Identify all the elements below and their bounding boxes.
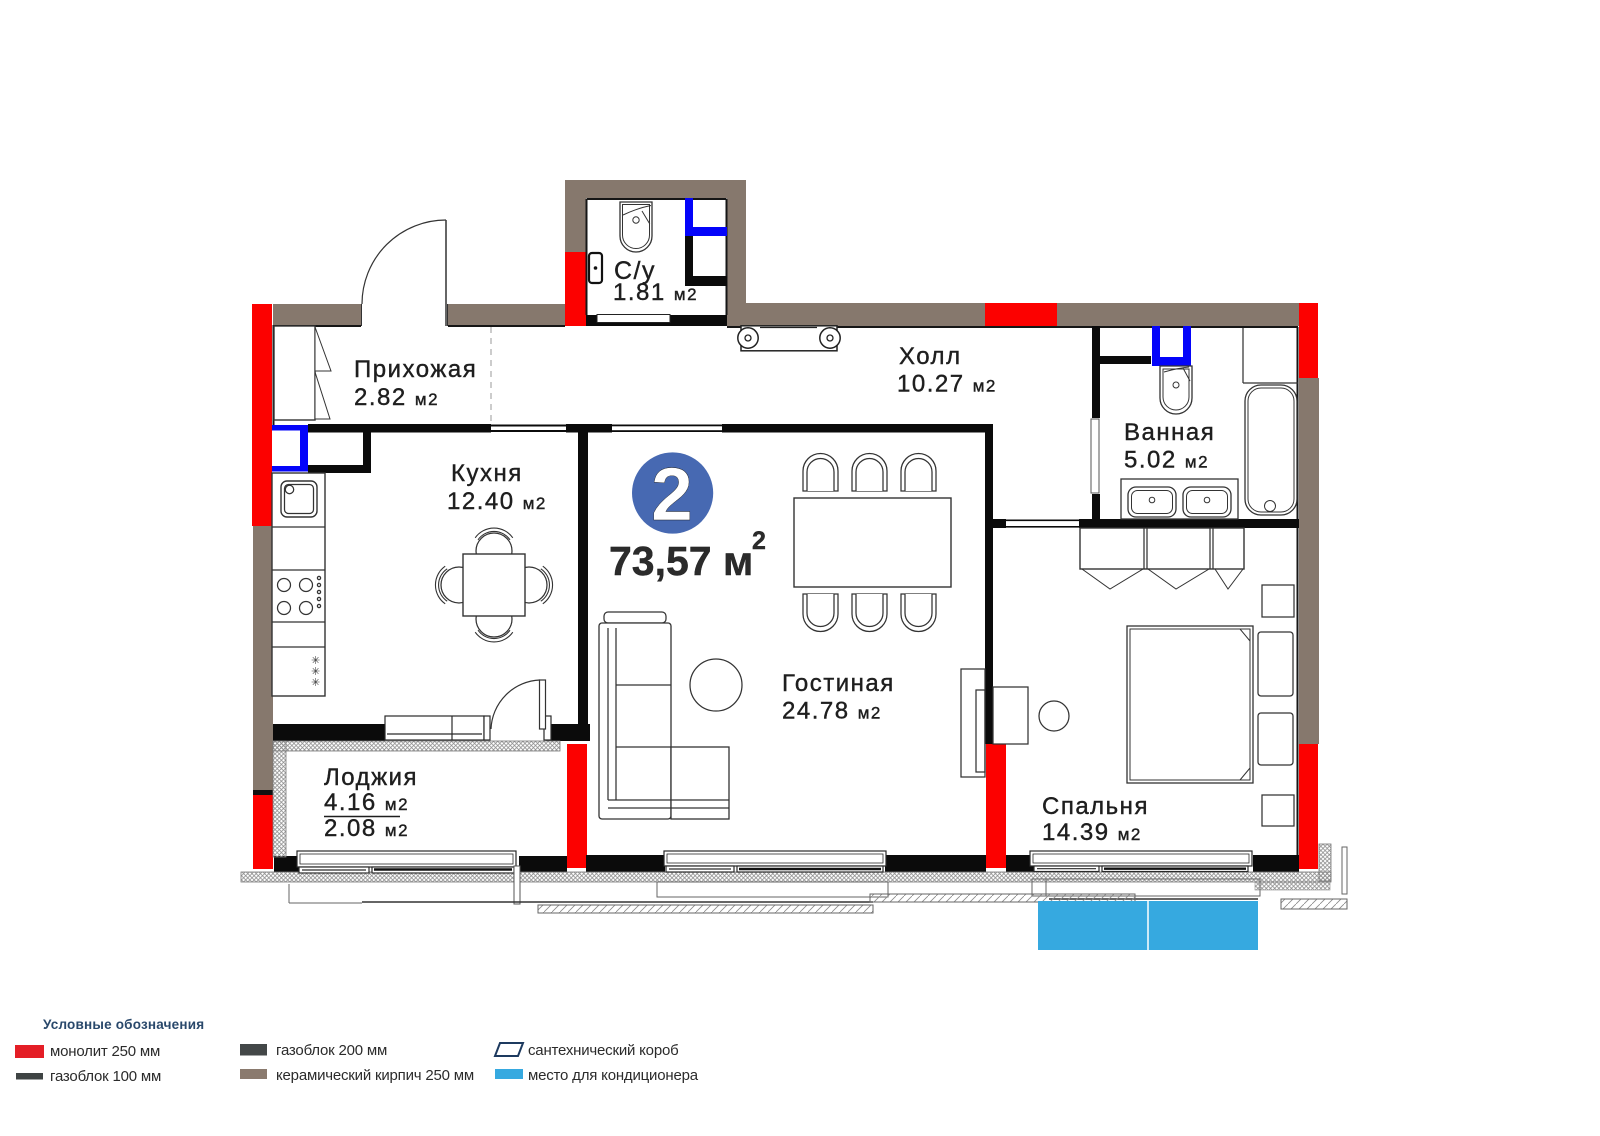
svg-text:Гостиная: Гостиная bbox=[782, 670, 895, 697]
svg-text:газоблок 100 мм: газоблок 100 мм bbox=[50, 1068, 161, 1085]
svg-text:Прихожая: Прихожая bbox=[354, 356, 477, 383]
svg-text:сантехнический короб: сантехнический короб bbox=[528, 1042, 679, 1059]
svg-text:73,57 м: 73,57 м bbox=[609, 538, 753, 584]
svg-text:монолит 250 мм: монолит 250 мм bbox=[50, 1043, 160, 1060]
svg-text:Условные обозначения: Условные обозначения bbox=[43, 1017, 204, 1032]
svg-text:Ванная: Ванная bbox=[1124, 419, 1215, 446]
svg-text:✳: ✳ bbox=[311, 677, 320, 689]
svg-text:газоблок 200 мм: газоблок 200 мм bbox=[276, 1042, 387, 1059]
svg-text:2: 2 bbox=[651, 452, 693, 536]
svg-text:керамический кирпич 250 мм: керамический кирпич 250 мм bbox=[276, 1067, 474, 1084]
svg-text:2: 2 bbox=[752, 527, 766, 555]
svg-text:Лоджия: Лоджия bbox=[324, 764, 418, 791]
svg-text:место для кондиционера: место для кондиционера bbox=[528, 1067, 699, 1084]
svg-text:Спальня: Спальня bbox=[1042, 793, 1149, 820]
svg-text:Холл: Холл bbox=[899, 343, 962, 370]
svg-text:Кухня: Кухня bbox=[451, 460, 523, 487]
